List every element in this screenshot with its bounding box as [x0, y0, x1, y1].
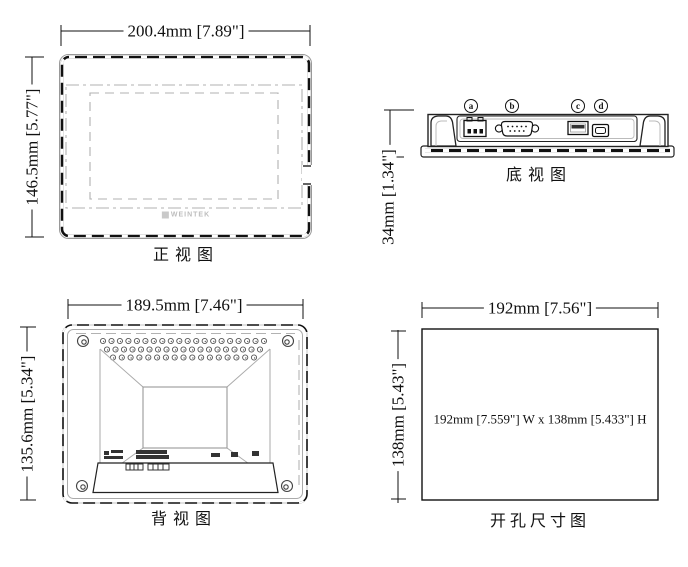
- cutout-size-note: 192mm [7.559"] W x 138mm [5.433"] H: [433, 413, 646, 426]
- front-view-title: 正视图: [153, 248, 219, 264]
- drawing-linework: [0, 0, 688, 567]
- cutout-view-title: 开孔尺寸图: [490, 514, 590, 530]
- rear-connector-recess: [93, 463, 278, 493]
- bottom-view-linework: [384, 110, 674, 157]
- port-label-b: b: [505, 99, 519, 113]
- dimension-drawing-sheet: 200.4mm [7.89"] 146.5mm [5.77"] WEINTEK …: [0, 0, 688, 567]
- power-terminal-icon: [464, 118, 486, 137]
- front-width-dim: 200.4mm [7.89"]: [124, 23, 249, 40]
- front-height-dim: 146.5mm [5.77"]: [24, 85, 41, 210]
- bottom-view-title: 底视图: [506, 168, 572, 184]
- back-height-dim: 135.6mm [5.34"]: [19, 352, 36, 477]
- port-label-a: a: [464, 99, 478, 113]
- brand-logo: WEINTEK: [162, 212, 210, 219]
- usb-client-icon: [593, 125, 609, 137]
- usb-host-icon: [568, 122, 588, 135]
- bottom-height-dim: 34mm [1.34"]: [380, 145, 397, 249]
- port-label-d: d: [594, 99, 608, 113]
- port-label-c: c: [571, 99, 585, 113]
- brand-logo-text: WEINTEK: [171, 212, 210, 219]
- cutout-width-dim: 192mm [7.56"]: [484, 300, 596, 317]
- front-panel-bezel: [62, 57, 309, 236]
- front-side-slot: [302, 165, 316, 185]
- cutout-height-dim: 138mm [5.43"]: [390, 359, 407, 471]
- front-view-linework: [25, 25, 316, 239]
- weintek-logo-icon: [162, 212, 169, 219]
- back-view-linework: [20, 299, 307, 503]
- recess-connector-marks: [126, 464, 169, 470]
- cutout-view-linework: [391, 302, 658, 503]
- back-view-title: 背视图: [151, 512, 217, 528]
- back-width-dim: 189.5mm [7.46"]: [122, 297, 247, 314]
